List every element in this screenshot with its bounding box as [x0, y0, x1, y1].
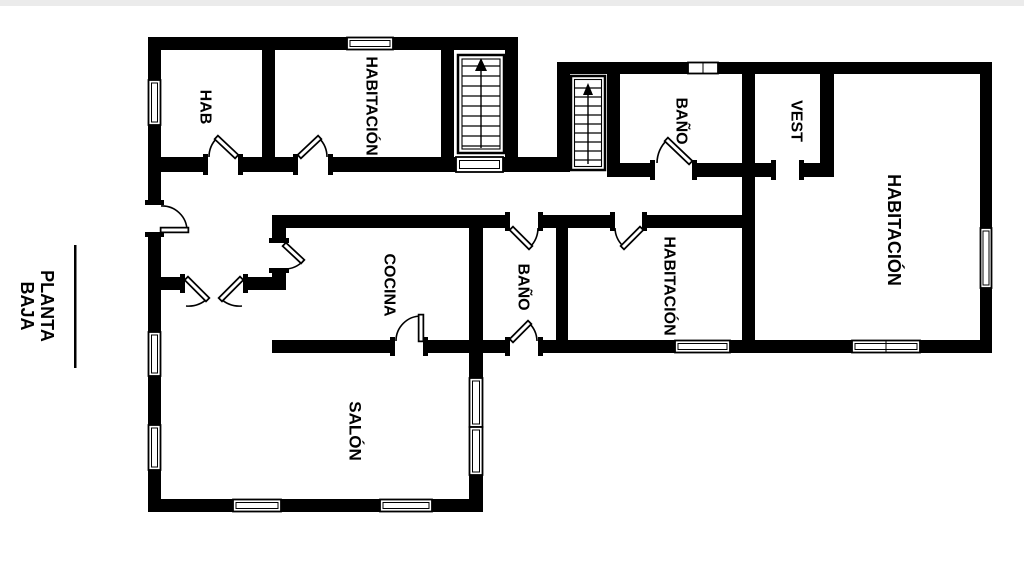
window	[380, 500, 432, 512]
wall-segment	[692, 163, 745, 177]
wall-segment	[557, 62, 992, 74]
wall-segment	[328, 157, 568, 172]
window	[456, 157, 503, 172]
room-label-hab: HAB	[197, 90, 214, 125]
wall-segment	[148, 277, 185, 290]
room-label-salon: SALÓN	[346, 401, 365, 461]
door-jamb	[771, 160, 776, 180]
wall-segment	[607, 163, 655, 177]
page-edge-strip	[0, 0, 1024, 6]
door-jamb	[505, 212, 510, 231]
window	[149, 332, 161, 376]
door-jamb	[799, 160, 804, 180]
door-jamb	[203, 154, 208, 175]
door-jamb	[243, 274, 248, 293]
window	[470, 378, 483, 427]
wall-segment	[262, 50, 275, 157]
room-label-cocina: COCINA	[381, 253, 398, 317]
door-jamb	[145, 200, 164, 205]
door-jamb	[650, 160, 655, 180]
window	[470, 427, 483, 475]
floor-plan: HAB HABITACIÓN BAÑO VEST HABITACIÓN COCI…	[0, 0, 1024, 564]
wall-segment	[148, 157, 208, 172]
wall-segment	[538, 340, 992, 353]
window	[688, 63, 718, 74]
window	[852, 341, 920, 353]
staircase-right-icon	[571, 76, 605, 170]
room-label-vest: VEST	[788, 100, 805, 142]
wall-segment	[980, 62, 992, 353]
door-jamb	[390, 337, 395, 356]
plan-title-line1: PLANTA	[37, 270, 57, 342]
staircase-left-icon	[458, 55, 504, 153]
wall-segment	[441, 50, 454, 157]
window	[347, 38, 393, 50]
door-jamb	[538, 337, 543, 356]
wall-segment	[820, 74, 834, 177]
room-label-habitacion-top: HABITACIÓN	[363, 56, 382, 155]
door-jamb	[692, 160, 697, 180]
wall-segment	[272, 340, 395, 353]
door-jamb	[180, 274, 185, 293]
door-jamb	[505, 337, 510, 356]
wall-segment	[243, 277, 286, 290]
wall-segment	[607, 74, 620, 172]
room-label-habitacion-right: HABITACIÓN	[884, 174, 905, 286]
door-jamb	[328, 154, 333, 175]
wall-segment	[800, 163, 834, 177]
door-jamb	[238, 154, 243, 175]
wall-segment	[148, 37, 518, 50]
window	[981, 228, 992, 288]
wall-segment	[423, 340, 510, 353]
wall-segment	[742, 62, 755, 353]
wall-segment	[238, 157, 298, 172]
room-label-bano-top: BAÑO	[673, 97, 693, 144]
wall-segment	[642, 215, 742, 228]
window	[233, 500, 281, 512]
plan-title-line2: BAJA	[17, 281, 37, 330]
window	[149, 425, 161, 470]
window	[149, 80, 161, 125]
window	[675, 341, 730, 353]
door-jamb	[293, 154, 298, 175]
wall-segment	[538, 215, 615, 228]
door-jamb	[642, 212, 647, 231]
room-label-bano-mid: BAÑO	[515, 263, 535, 310]
title-separator-line	[74, 245, 77, 368]
wall-segment	[557, 62, 570, 172]
wall-segment	[505, 37, 518, 172]
room-label-habitacion-mid: HABITACIÓN	[661, 236, 680, 335]
wall-segment	[556, 215, 568, 353]
